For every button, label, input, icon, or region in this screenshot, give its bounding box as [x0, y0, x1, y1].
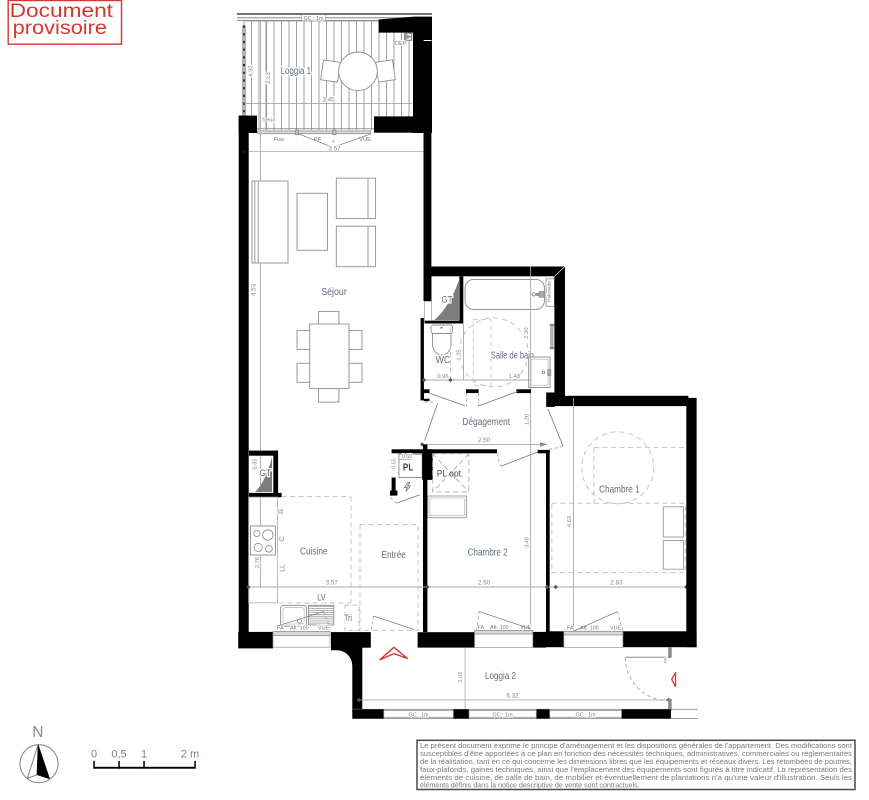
- svg-text:éléments de cuisine, de salle: éléments de cuisine, de salle de bain, d…: [420, 774, 853, 782]
- svg-text:2.30: 2.30: [524, 327, 530, 338]
- svg-text:DEP: DEP: [395, 41, 407, 47]
- svg-text:6.92: 6.92: [248, 66, 254, 77]
- svg-text:Palissade: Palissade: [547, 281, 553, 302]
- svg-text:0.96: 0.96: [437, 374, 448, 380]
- svg-text:Chambre 2: Chambre 2: [468, 547, 508, 559]
- svg-text:1: 1: [141, 749, 147, 761]
- svg-text:0.85: 0.85: [253, 459, 259, 470]
- svg-text:GT: GT: [442, 294, 453, 304]
- svg-text:Salle de bain: Salle de bain: [491, 350, 534, 361]
- svg-text:R: R: [279, 509, 286, 514]
- svg-text:6.32: 6.32: [506, 693, 519, 700]
- svg-text:Att. 100: Att. 100: [490, 625, 509, 631]
- svg-text:GC : 1m: GC : 1m: [576, 712, 597, 718]
- svg-text:4.53: 4.53: [251, 283, 258, 296]
- svg-text:PL opt.: PL opt.: [437, 469, 464, 480]
- svg-text:2.13: 2.13: [266, 72, 272, 84]
- svg-text:4.63: 4.63: [567, 516, 573, 527]
- svg-text:2.50: 2.50: [478, 437, 491, 444]
- svg-text:FA: FA: [277, 626, 284, 632]
- svg-text:Entrée: Entrée: [382, 549, 407, 561]
- svg-text:Cuisine: Cuisine: [300, 545, 328, 557]
- svg-text:GC : 1m: GC : 1m: [493, 712, 514, 718]
- svg-text:provisoire: provisoire: [13, 18, 107, 39]
- svg-text:3.45: 3.45: [322, 97, 335, 104]
- svg-text:3.48: 3.48: [524, 537, 530, 548]
- svg-text:PL: PL: [403, 462, 413, 473]
- svg-text:2.76: 2.76: [255, 557, 261, 568]
- svg-text:Le présent document exprime le: Le présent document exprime le principe …: [420, 742, 852, 750]
- svg-text:Dégagement: Dégagement: [463, 416, 511, 428]
- svg-text:Att. 100: Att. 100: [290, 626, 309, 632]
- svg-text:FA: FA: [567, 626, 574, 632]
- svg-text:0.55: 0.55: [391, 458, 397, 469]
- svg-text:Fixe: Fixe: [274, 137, 285, 143]
- svg-text:2.83: 2.83: [610, 580, 623, 587]
- svg-text:FA: FA: [663, 656, 668, 663]
- svg-text:Chambre 1: Chambre 1: [599, 483, 640, 495]
- svg-text:susceptibles d'être apportées: susceptibles d'être apportées à ce plan …: [420, 750, 852, 758]
- svg-text:Séjour: Séjour: [321, 286, 347, 298]
- svg-text:GC : 1m: GC : 1m: [408, 712, 429, 718]
- svg-text:GT: GT: [260, 468, 272, 478]
- svg-text:1.05: 1.05: [458, 672, 464, 683]
- svg-text:de la réalisation, tant en ce: de la réalisation, tant en ce qui concer…: [420, 758, 852, 766]
- svg-text:1.35: 1.35: [457, 350, 463, 361]
- svg-text:faux-plafonds, gaines techniqu: faux-plafonds, gaines techniques, ainsi …: [420, 766, 852, 774]
- svg-text:1.48: 1.48: [509, 374, 520, 380]
- svg-text:0.60: 0.60: [402, 454, 413, 460]
- svg-text:Att. 100: Att. 100: [580, 626, 599, 632]
- svg-text:C: C: [279, 536, 286, 541]
- svg-text:Tri: Tri: [344, 613, 352, 623]
- svg-text:2.50: 2.50: [478, 580, 491, 587]
- svg-text:WC: WC: [436, 354, 451, 366]
- svg-text:Loggia 2: Loggia 2: [485, 670, 516, 682]
- svg-text:éléments définis dans la notic: éléments définis dans la notice descript…: [420, 782, 640, 790]
- svg-text:VUE: VUE: [610, 626, 621, 632]
- svg-text:0,5: 0,5: [111, 749, 126, 761]
- svg-text:3.57: 3.57: [326, 580, 339, 587]
- svg-text:FA: FA: [478, 625, 485, 631]
- svg-text:N: N: [32, 724, 43, 741]
- svg-text:Loggia 1: Loggia 1: [281, 66, 312, 77]
- svg-text:VUE: VUE: [318, 626, 329, 632]
- svg-text:Seuil: Seuil: [262, 118, 275, 124]
- svg-text:2 m: 2 m: [181, 749, 199, 761]
- svg-text:1.20: 1.20: [524, 414, 530, 425]
- svg-text:LL: LL: [280, 564, 287, 572]
- svg-text:VUE: VUE: [359, 137, 371, 143]
- svg-text:LV: LV: [317, 592, 325, 602]
- svg-text:0: 0: [91, 749, 97, 761]
